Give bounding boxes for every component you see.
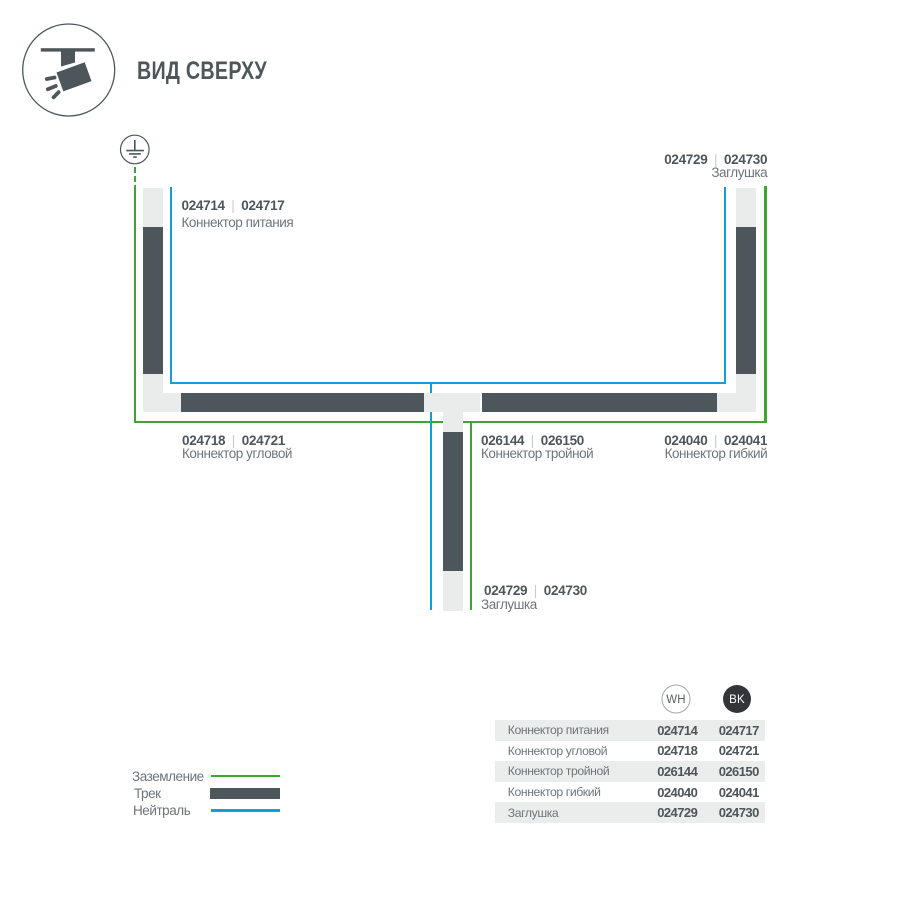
svg-text:ВИД СВЕРХУ: ВИД СВЕРХУ — [137, 57, 268, 85]
svg-text:WH: WH — [666, 694, 686, 706]
svg-text:BK: BK — [729, 694, 745, 706]
